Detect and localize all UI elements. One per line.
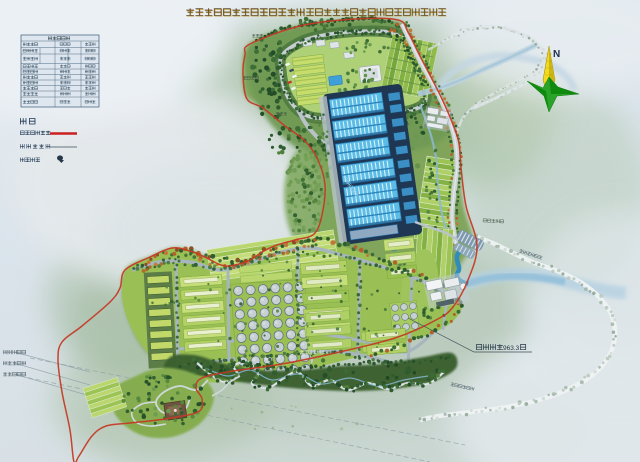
- svg-text:N: N: [553, 49, 560, 60]
- svg-text:963.3: 963.3: [503, 345, 520, 352]
